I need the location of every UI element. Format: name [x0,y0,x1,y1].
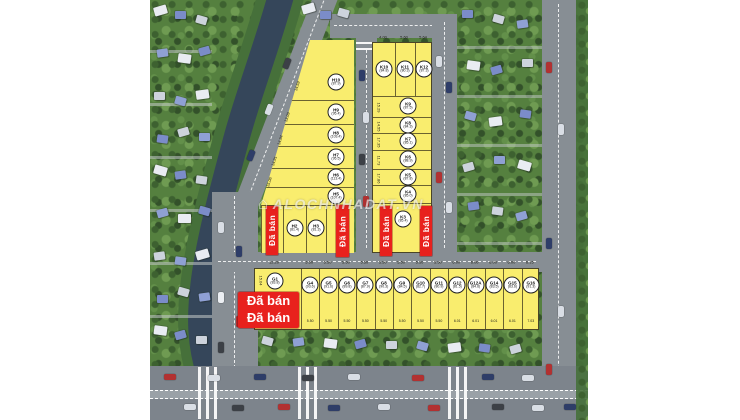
sold-box-line2: Đã bán [247,310,290,327]
plot-label-circle: K11(80.3) [397,61,414,78]
house [154,92,165,100]
vehicle [184,404,196,410]
plot-label-circle: K9(87.5) [400,98,417,115]
plot-label-circle: G6(89.8) [338,277,355,294]
house [516,19,528,28]
house [157,295,168,303]
watermark: ⌂ ALOCHNHADAT.VN [258,194,424,214]
plot-area: (89.8) [342,286,351,290]
vehicle [546,62,552,73]
top-dimension: 5.50 [305,260,313,265]
plot-label-circle: G5(91.6) [320,277,337,294]
k-left-dimension: 17.86 [377,173,382,183]
vehicle [359,154,365,165]
plot-label-circle: K7(85.1) [400,133,417,150]
plot-label-circle: G8(90.3) [375,277,392,294]
plot-area: (91.3) [526,286,535,290]
bottom-dimension: 6.01 [454,319,461,323]
plot-label-circle: H3(81.3) [308,220,325,237]
house [519,109,531,118]
plot-area: (81.5) [453,286,462,290]
house [178,214,191,223]
top-dimension: 5.50 [434,260,442,265]
house [156,134,168,143]
plot-area: (80.3) [400,70,409,74]
sold-box-line1: Đã bán [247,293,290,310]
k-top-dimension: 5.64 [419,35,427,40]
plot-area: (80.9) [434,286,443,290]
house [177,53,191,64]
plot-label-circle: H6(113.4) [328,169,345,186]
g1-top-dimension: 12.29 [269,260,279,265]
bottom-dimension: 5.50 [325,319,332,323]
plot-area: (88.9) [403,160,412,164]
vehicle [546,364,552,375]
house [195,89,209,100]
plot-area: (83.8) [270,282,279,286]
plot-area: (91.6) [324,286,333,290]
vehicle [254,374,266,380]
plot-area: (87.9) [361,286,370,290]
plot-area: (84.5) [398,286,407,290]
house [491,206,503,215]
plot-area: (87.8) [403,178,412,182]
house [447,342,461,353]
k-left-dimension: 15.29 [377,102,382,112]
watermark-text: ALOCHNHADAT.VN [273,196,424,212]
crosswalk-3 [448,367,468,419]
vehicle [446,202,452,213]
plot-label-circle: G14(83.5) [486,277,503,294]
vehicle [348,374,360,380]
plot-area: (83.5) [489,286,498,290]
plot-area: (87.9) [331,83,340,87]
vehicle [446,82,452,93]
vehicle [302,375,314,381]
vehicle [522,375,534,381]
house [153,325,167,336]
house [320,11,331,19]
bottom-dimension: 5.50 [435,319,442,323]
plot-area: (81.4) [290,229,299,233]
top-dimension: 5.50 [324,260,332,265]
plot-area: (87.3) [419,70,428,74]
top-dimension: 6.15 [526,260,534,265]
plot-label-circle: H10(87.9) [328,74,345,91]
house [462,10,473,18]
east-block-road [432,16,457,254]
plot-label-circle: G11(80.9) [430,277,447,294]
vehicle [218,222,224,233]
bottom-dimension: 5.50 [380,319,387,323]
bottom-dimension: 5.50 [362,319,369,323]
bottom-dimension: 5.50 [344,319,351,323]
plot-area: (95.5) [331,158,340,162]
plot-label-circle: H9(95.4) [328,104,345,121]
house [323,338,337,349]
plot-label-circle: G9(84.5) [394,277,411,294]
top-dimension: 6.00 [471,260,479,265]
house [198,292,210,301]
plot-label-circle: K8(84.3) [400,117,417,134]
vehicle [208,375,220,381]
bottom-dimension: 6.01 [491,319,498,323]
house [478,343,490,352]
plot-area: (87.5) [403,107,412,111]
top-dimension: 6.00 [489,260,497,265]
top-dimension: 5.50 [360,260,368,265]
k-top-dimension: 4.00 [379,35,387,40]
plot-area: (85.4) [398,220,407,224]
plot-area: (93.6) [306,286,315,290]
vehicle [359,70,365,81]
plot-label-circle: H2(81.4) [286,220,303,237]
house [522,59,533,67]
vehicle [436,172,442,183]
top-dimension: 6.00 [452,260,460,265]
right-edge-trees [576,0,588,420]
bottom-dimension: 6.01 [472,319,479,323]
plot-label-circle: G1(83.8) [267,273,284,290]
vehicle [164,374,176,380]
plot-label-circle: G15(83.6) [504,277,521,294]
vehicle [278,404,290,410]
plot-area: (113.4) [331,178,342,182]
k-top-dimension: 5.60 [400,35,408,40]
house [386,341,397,349]
vehicle [428,405,440,411]
k-left-dimension: 14.55 [377,121,382,131]
plot-label-circle: K6(88.9) [400,151,417,168]
vehicle [218,292,224,303]
house [156,48,168,57]
house [199,133,210,141]
k-left-dimension: 17.35 [377,137,382,147]
house-icon: ⌂ [258,194,270,214]
bottom-dimension: 6.01 [509,319,516,323]
bottom-dimension: 5.50 [417,319,424,323]
bottom-dimension: 5.50 [307,319,314,323]
top-dimension: 5.50 [379,260,387,265]
vehicle [564,404,576,410]
vehicle [218,342,224,353]
aerial-photo: H10(87.9)H9(95.4)H8(103.4)H7(95.5)H6(113… [150,0,588,420]
plot-area: (85.1) [403,142,412,146]
house [494,156,505,164]
vehicle [232,405,244,411]
plot-label-circle: G16(91.3) [522,277,539,294]
house [153,251,165,260]
plot-label-circle: G7(87.9) [357,277,374,294]
plot-area: (81.3) [311,229,320,233]
plot-label-circle: H7(95.5) [328,149,345,166]
map-canvas: H10(87.9)H9(95.4)H8(103.4)H7(95.5)H6(113… [0,0,740,420]
plot-area: (83.6) [508,286,517,290]
house [175,11,186,19]
vehicle [328,405,340,411]
house [174,170,186,179]
vehicle [378,404,390,410]
house [196,336,207,344]
vehicle [558,124,564,135]
house [292,337,304,346]
vehicle [482,374,494,380]
plot-label-circle: K5(87.8) [400,169,417,186]
house [488,116,502,127]
vehicle [236,246,242,257]
plot-label-circle: K10(84.8) [376,61,393,78]
bottom-dimension: 7.03 [527,319,534,323]
vehicle [558,306,564,317]
top-dimension: 5.50 [416,260,424,265]
plot-label-circle: G10(82.7) [412,277,429,294]
plot-label-circle: H8(103.4) [328,127,345,144]
top-dimension: 5.50 [342,260,350,265]
vehicle [363,112,369,123]
top-dimension: 5.50 [397,260,405,265]
plot-label-circle: G12A(84.6) [467,277,484,294]
plot-label-circle: K12(87.3) [416,61,433,78]
plot-area: (90.3) [379,286,388,290]
plot-area: (95.4) [331,113,340,117]
plot-area: (84.3) [403,126,412,130]
vehicle [436,56,442,67]
g1-left-dimension: 15.04 [259,275,264,285]
sold-box: Đã bán Đã bán [238,292,299,328]
house [174,256,186,265]
plot-area: (84.6) [471,286,480,290]
plot-area: (103.4) [330,136,341,140]
plot-label-circle: G4(93.6) [302,277,319,294]
vehicle [532,405,544,411]
house [467,201,479,210]
k-left-dimension: 11.73 [376,156,381,166]
plot-label-circle: G12(81.5) [449,277,466,294]
plot-area: (82.7) [416,286,425,290]
top-dimension: 6.00 [508,260,516,265]
vehicle [546,238,552,249]
house [466,60,480,71]
vehicle [412,375,424,381]
vehicle [492,404,504,410]
plot-area: (84.8) [379,70,388,74]
bottom-dimension: 5.50 [399,319,406,323]
house [195,175,207,184]
